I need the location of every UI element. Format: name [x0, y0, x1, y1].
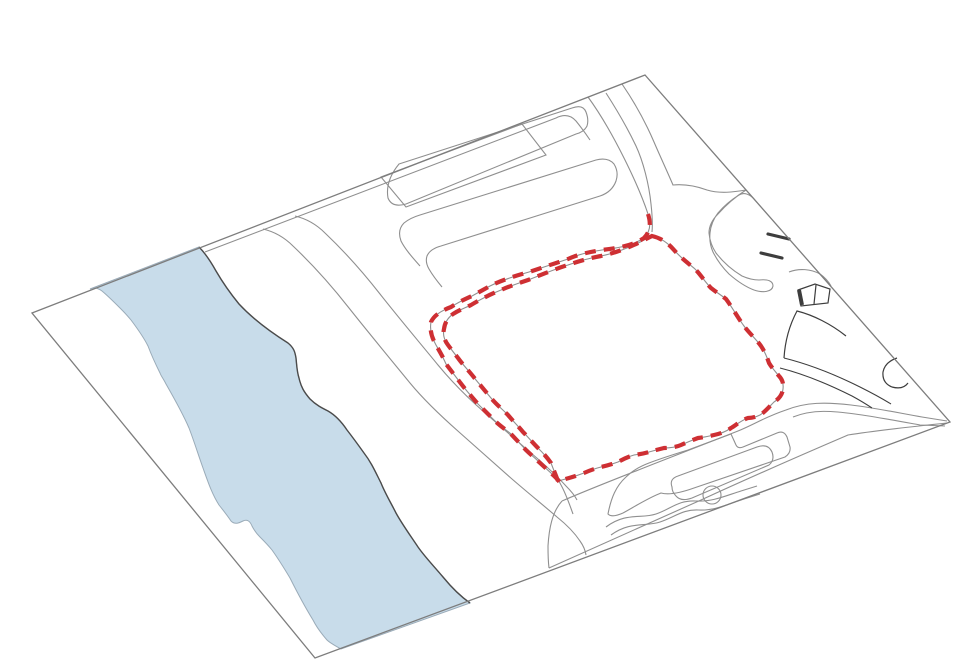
site-plan-svg	[0, 0, 961, 669]
site-plan-figure	[0, 0, 961, 669]
